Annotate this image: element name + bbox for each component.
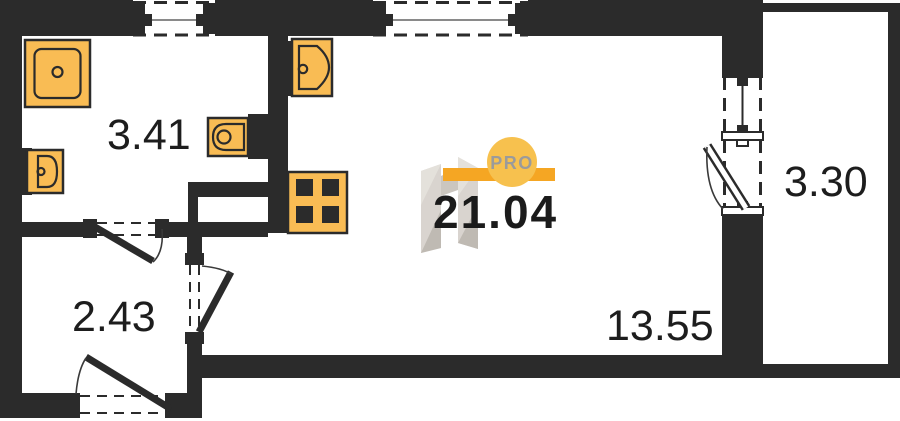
stove-icon (288, 172, 347, 233)
living-kitchen-area-label: 13.55 (606, 302, 714, 350)
toilet-icon (208, 114, 269, 159)
wall-balcony-right (888, 3, 900, 378)
wall-balcony-bottom (763, 364, 900, 378)
wall-top-b (215, 0, 373, 36)
mainroom-door-jamb-top (185, 253, 204, 265)
wall-bathroom-bottom-left (0, 222, 85, 237)
window-sill (722, 132, 763, 140)
wall-bathroom-bottom-right (168, 222, 268, 237)
hallway-area-label: 2.43 (72, 293, 156, 341)
floor-plan-drawing: PRO 21.04 3.41 2.43 13.55 3.30 (0, 0, 900, 421)
wall-left-outer (0, 0, 22, 418)
wall-duct-top (188, 182, 270, 197)
washing-machine-icon (25, 40, 90, 107)
wall-bottom-main (202, 355, 763, 378)
wall-balcony-divider-upper (722, 36, 763, 78)
bathroom-area-label: 3.41 (107, 111, 191, 159)
wall-balcony-divider-lower (722, 215, 763, 378)
kitchen-sink-icon (282, 39, 332, 96)
wall-duct-left (188, 182, 198, 222)
watermark-badge: PRO (490, 153, 534, 173)
entrance-door-jamb-left (68, 393, 80, 418)
wall-hall-bottom-left (0, 393, 70, 418)
wall-balcony-top (763, 3, 900, 12)
floor-plan: PRO 21.04 3.41 2.43 13.55 3.30 (0, 0, 900, 421)
total-area-label: 21.04 (433, 186, 558, 238)
wall-top-c (528, 0, 763, 36)
wall-hall-right-top (187, 222, 202, 253)
wall-hall-bottom-right (177, 393, 202, 418)
wall-top-a (0, 0, 133, 36)
mainroom-door-jamb-bottom (185, 332, 204, 344)
wash-basin-icon (22, 148, 63, 195)
balcony-area-label: 3.30 (784, 158, 868, 206)
